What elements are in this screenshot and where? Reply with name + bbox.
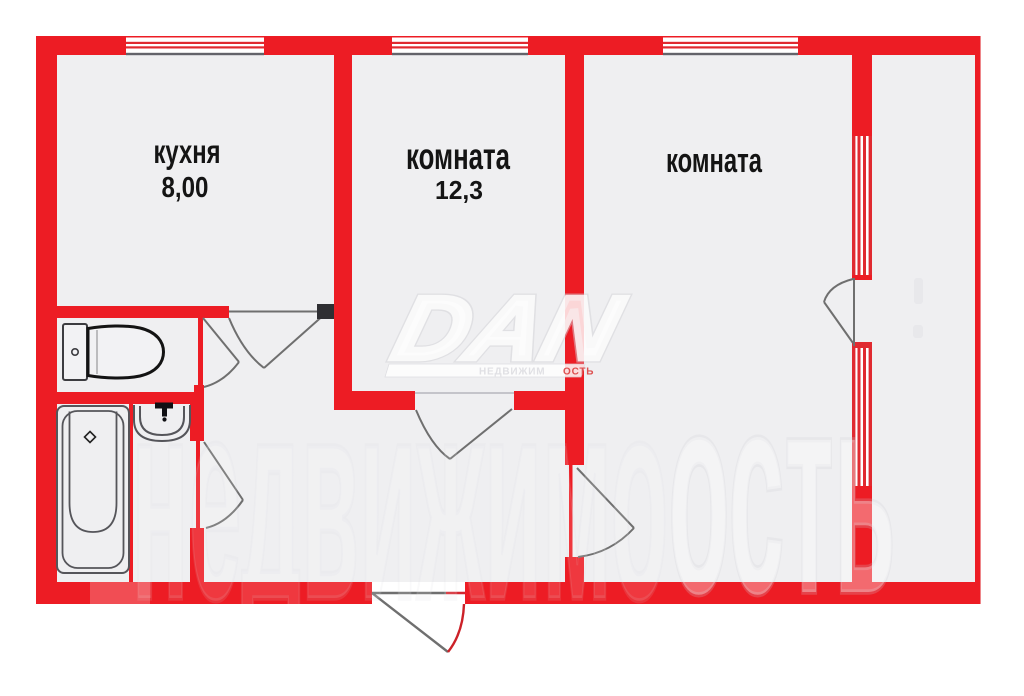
svg-text:8,00: 8,00 [162, 171, 209, 203]
svg-text:комната: комната [406, 135, 511, 177]
svg-text:комната: комната [666, 142, 762, 180]
svg-text:ОСТЬ: ОСТЬ [563, 367, 594, 378]
svg-text:ость: ость [668, 332, 896, 654]
svg-text:НЕДВИЖИМ: НЕДВИЖИМ [479, 367, 545, 378]
svg-text:12,3: 12,3 [435, 176, 483, 205]
svg-text:недвижимо: недвижимо [132, 339, 669, 660]
svg-text:кухня: кухня [154, 134, 221, 171]
svg-text:DAN: DAN [384, 278, 633, 379]
